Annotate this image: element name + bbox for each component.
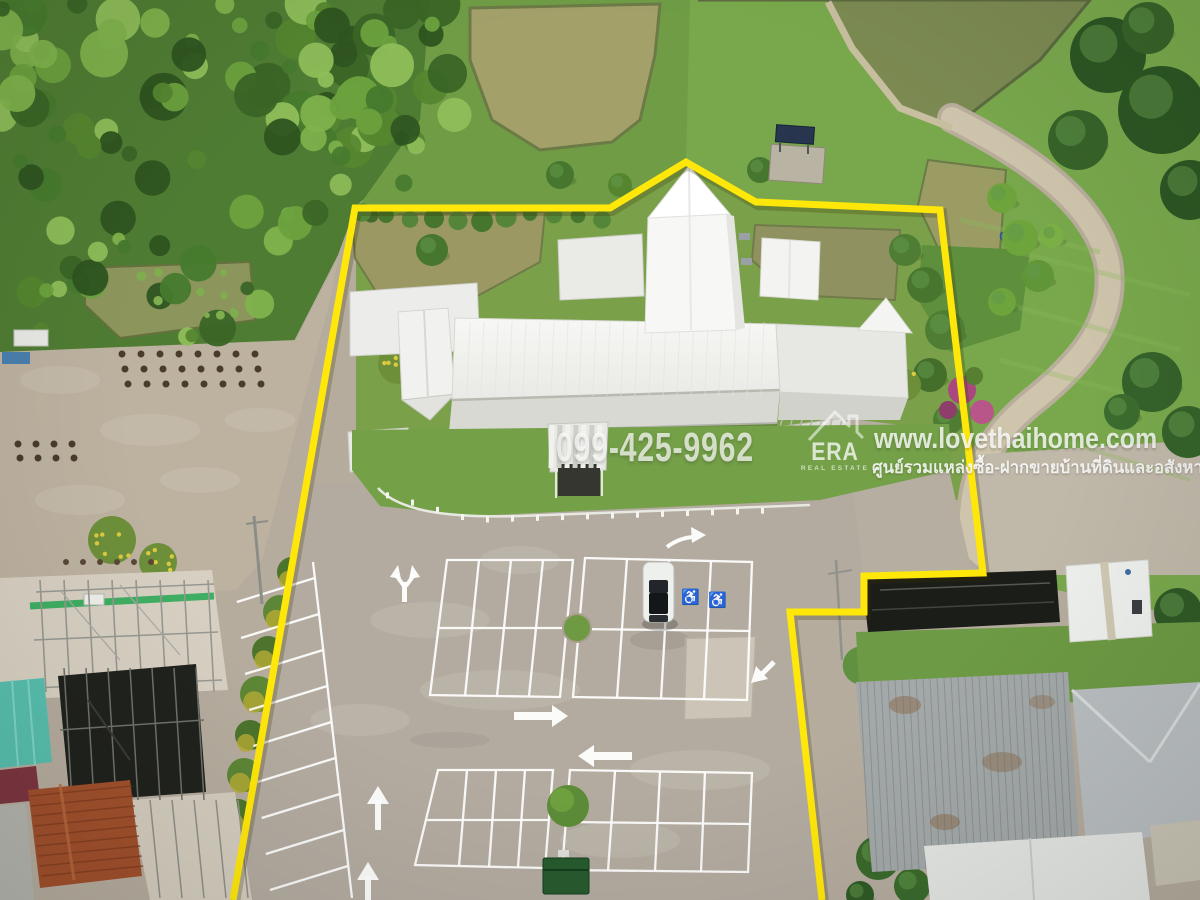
shade-net-roof <box>58 664 206 802</box>
aerial-photo: 099-425-9962 ERA REAL ESTATE www.lovetha… <box>0 0 1200 900</box>
entrance-awning <box>548 422 608 498</box>
aerial-scene <box>0 0 1200 900</box>
parked-car <box>642 562 678 631</box>
teal-roof <box>0 678 52 768</box>
